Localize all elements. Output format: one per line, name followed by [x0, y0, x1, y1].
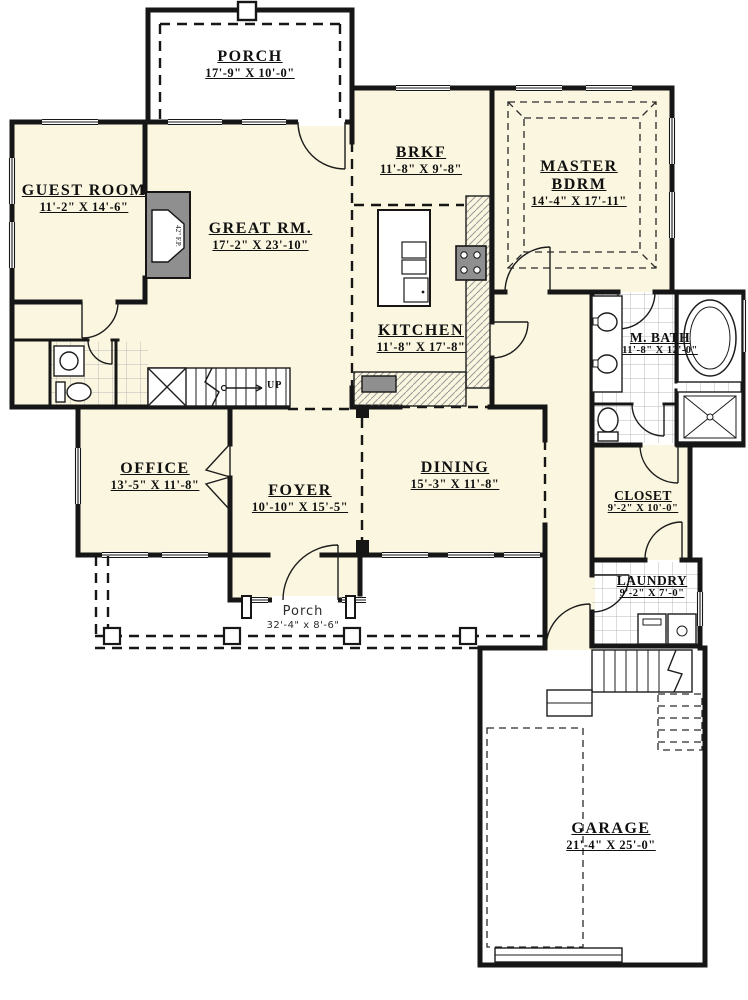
room-dims: 11'-2" X 14'-6"	[0, 200, 168, 214]
room-label-guest-room: GUEST ROOM 11'-2" X 14'-6"	[0, 182, 168, 214]
room-label-dining: DINING 15'-3" X 11'-8"	[380, 459, 530, 491]
room-name: BRKF	[348, 144, 494, 162]
wc-toilet	[598, 408, 618, 432]
room-name: GREAT RM.	[173, 220, 348, 238]
room-dims: 17'-9" X 10'-0"	[160, 66, 340, 80]
room-name: GARAGE	[535, 820, 687, 838]
room-dims: 9'-2" X 7'-0"	[592, 588, 712, 600]
room-name: LAUNDRY	[592, 573, 712, 588]
room-label-breakfast: BRKF 11'-8" X 9'-8"	[348, 144, 494, 176]
room-name: GUEST ROOM	[0, 182, 168, 200]
room-label-master-bath: M. BATH 11'-8" X 12'-0"	[598, 330, 722, 357]
room-dims: 21'-4" X 25'-0"	[535, 838, 687, 852]
kitchen-sink-bottom	[362, 376, 396, 392]
room-dims: 17'-2" X 23'-10"	[173, 238, 348, 252]
room-dims: 11'-8" X 9'-8"	[348, 162, 494, 176]
toilet-bowl	[67, 383, 91, 401]
island-sink	[402, 242, 426, 258]
room-label-kitchen: KITCHEN 11'-8" X 17'-8"	[346, 322, 496, 354]
room-name: Porch	[244, 605, 362, 620]
room-label-garage: GARAGE 21'-4" X 25'-0"	[535, 820, 687, 852]
room-dims: 9'-2" X 10'-0"	[588, 503, 698, 515]
powder-sink	[60, 352, 78, 370]
room-label-office: OFFICE 13'-5" X 11'-8"	[80, 460, 230, 492]
room-label-porch-bottom: Porch 32'-4" x 8'-6"	[244, 605, 362, 631]
porch-column	[104, 628, 120, 644]
room-dims: 32'-4" x 8'-6"	[244, 620, 362, 631]
room-name: M. BATH	[598, 330, 722, 345]
bath-sink	[597, 313, 617, 331]
room-name: DINING	[380, 459, 530, 477]
room-label-master-bdrm: MASTER BDRM 14'-4" X 17'-11"	[520, 158, 638, 208]
room-label-great-room: GREAT RM. 17'-2" X 23'-10"	[173, 220, 348, 252]
room-dims: 15'-3" X 11'-8"	[380, 477, 530, 491]
room-dims: 10'-10" X 15'-5"	[226, 500, 374, 514]
room-name: CLOSET	[588, 488, 698, 503]
stairs-up-label: UP	[267, 380, 282, 391]
toilet-tank	[56, 382, 65, 402]
room-label-porch-top: PORCH 17'-9" X 10'-0"	[160, 48, 340, 80]
bath-sink	[597, 355, 617, 373]
room-label-foyer: FOYER 10'-10" X 15'-5"	[226, 482, 374, 514]
room-dims: 13'-5" X 11'-8"	[80, 478, 230, 492]
room-name: PORCH	[160, 48, 340, 66]
porch-column	[460, 628, 476, 644]
porch-roof-post	[238, 2, 256, 20]
room-dims: 14'-4" X 17'-11"	[520, 194, 638, 208]
room-dims: 11'-8" X 17'-8"	[346, 340, 496, 354]
room-label-closet: CLOSET 9'-2" X 10'-0"	[588, 488, 698, 515]
range	[456, 246, 486, 280]
dryer	[668, 614, 696, 644]
kitchen-counter-right	[466, 196, 490, 388]
room-name: OFFICE	[80, 460, 230, 478]
room-dims: 11'-8" X 12'-0"	[598, 345, 722, 357]
floor-plan: 42" F.P.	[0, 0, 748, 1000]
room-label-laundry: LAUNDRY 9'-2" X 7'-0"	[592, 573, 712, 600]
garage-details	[487, 650, 702, 962]
room-name: KITCHEN	[346, 322, 496, 340]
room-name: MASTER BDRM	[520, 158, 638, 194]
room-name: FOYER	[226, 482, 374, 500]
porch-column	[224, 628, 240, 644]
island-dishwasher	[404, 278, 428, 302]
